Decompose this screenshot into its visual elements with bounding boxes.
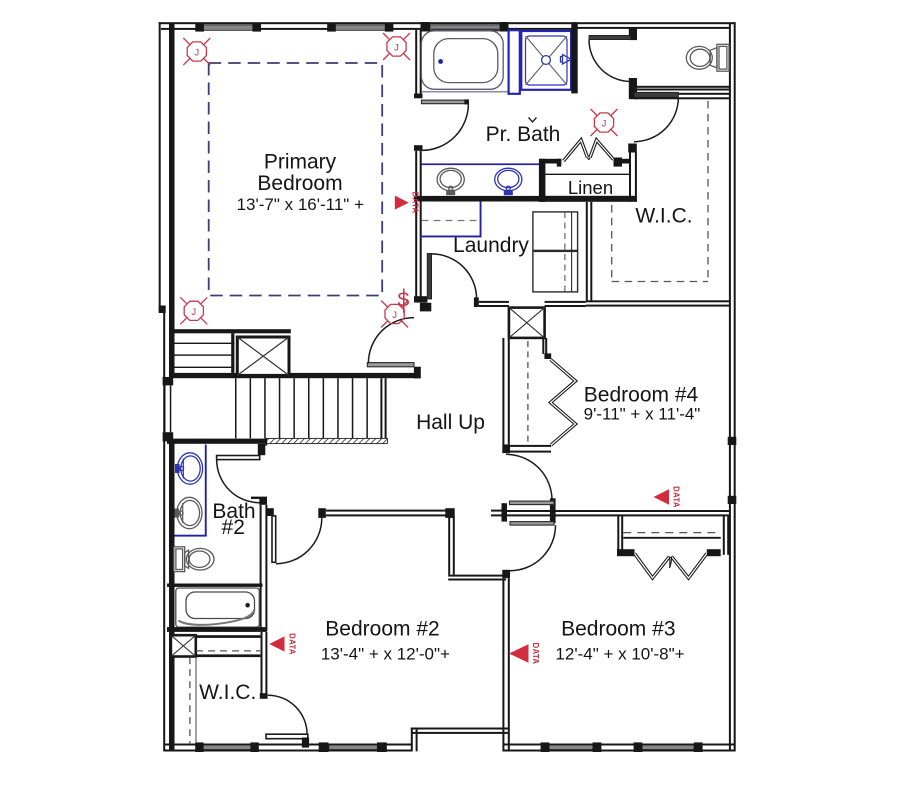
svg-text:Bedroom #3: Bedroom #3 [561,617,675,640]
svg-text:DATA: DATA [531,643,540,665]
svg-text:J: J [194,48,199,59]
svg-text:J: J [392,310,397,321]
svg-text:W.I.C.: W.I.C. [635,205,692,228]
svg-text:Hall Up: Hall Up [416,411,485,434]
svg-text:Bedroom #2: Bedroom #2 [325,617,439,640]
svg-text:Bedroom: Bedroom [257,172,342,195]
svg-text:#2: #2 [222,516,245,539]
svg-text:S: S [397,289,410,311]
svg-text:13'-4" + x 12'-0"+: 13'-4" + x 12'-0"+ [321,644,450,663]
svg-text:Primary: Primary [264,150,337,173]
svg-text:J: J [394,43,399,54]
svg-text:9'-11" + x 11'-4": 9'-11" + x 11'-4" [584,405,701,424]
svg-text:J: J [602,119,607,130]
svg-text:Pr. Bath: Pr. Bath [486,123,561,146]
svg-text:Laundry: Laundry [453,234,529,257]
svg-text:J: J [191,307,196,318]
svg-text:13'-7" x 16'-11" +: 13'-7" x 16'-11" + [237,195,364,214]
svg-text:W.I.C.: W.I.C. [199,681,256,704]
svg-text:12'-4" + x 10'-8"+: 12'-4" + x 10'-8"+ [555,644,684,663]
svg-text:DATA: DATA [288,633,297,655]
svg-text:DATA: DATA [411,192,420,214]
svg-text:Bedroom #4: Bedroom #4 [584,383,699,406]
svg-text:Linen: Linen [568,177,613,198]
svg-text:DATA: DATA [672,486,681,508]
